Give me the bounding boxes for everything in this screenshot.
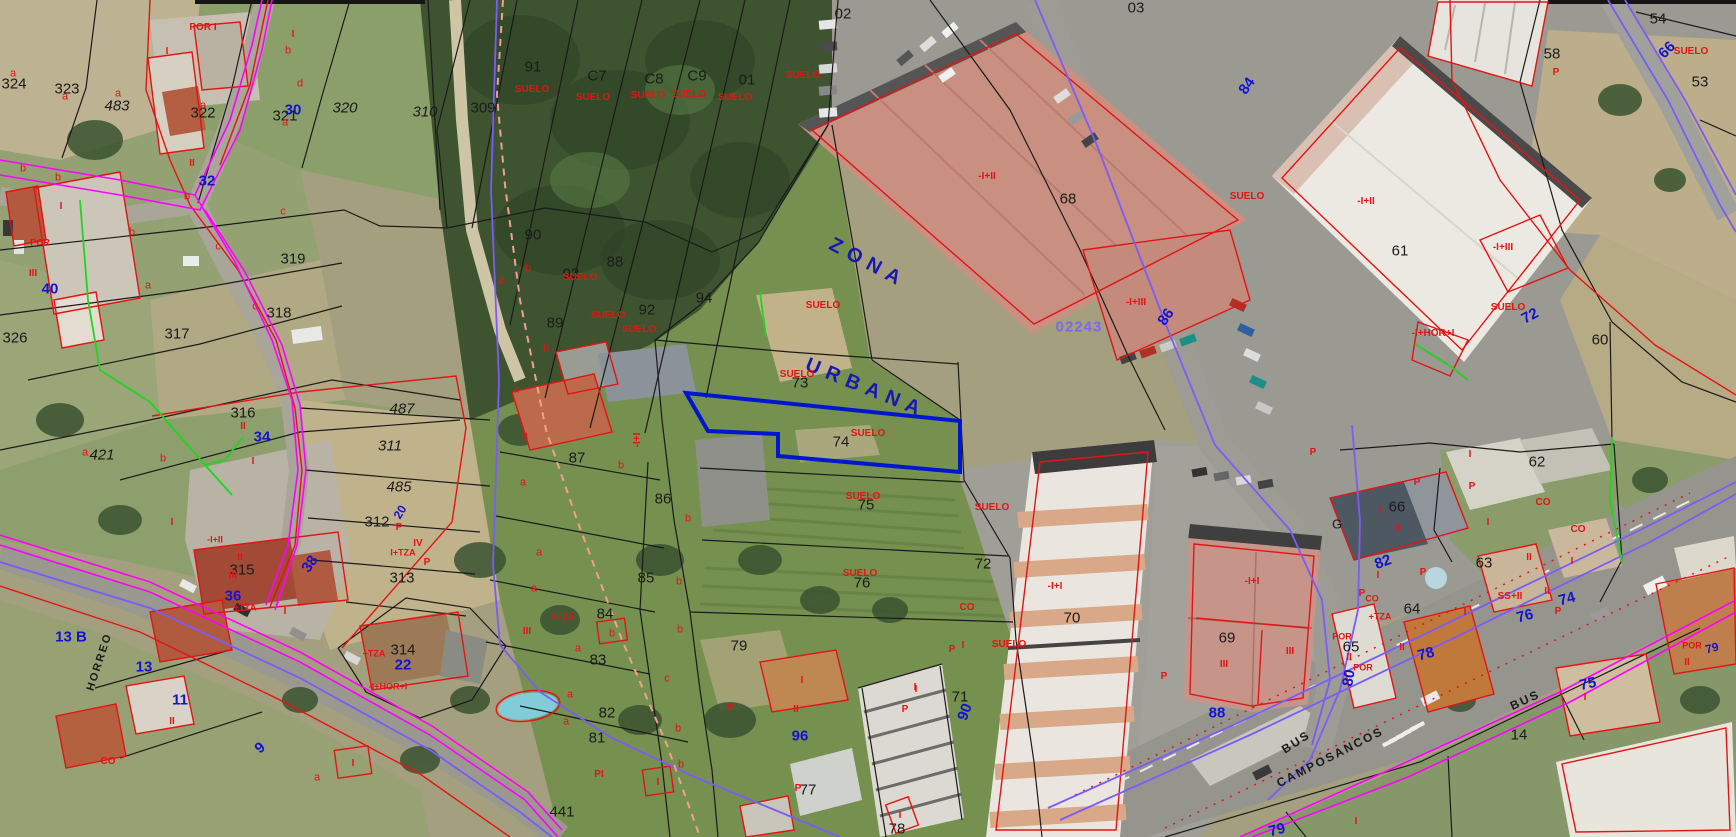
- cadastral-map-viewport[interactable]: 32432348332232032131030991C7C8C901020368…: [0, 0, 1736, 837]
- aerial-imagery-layer: [0, 0, 1736, 837]
